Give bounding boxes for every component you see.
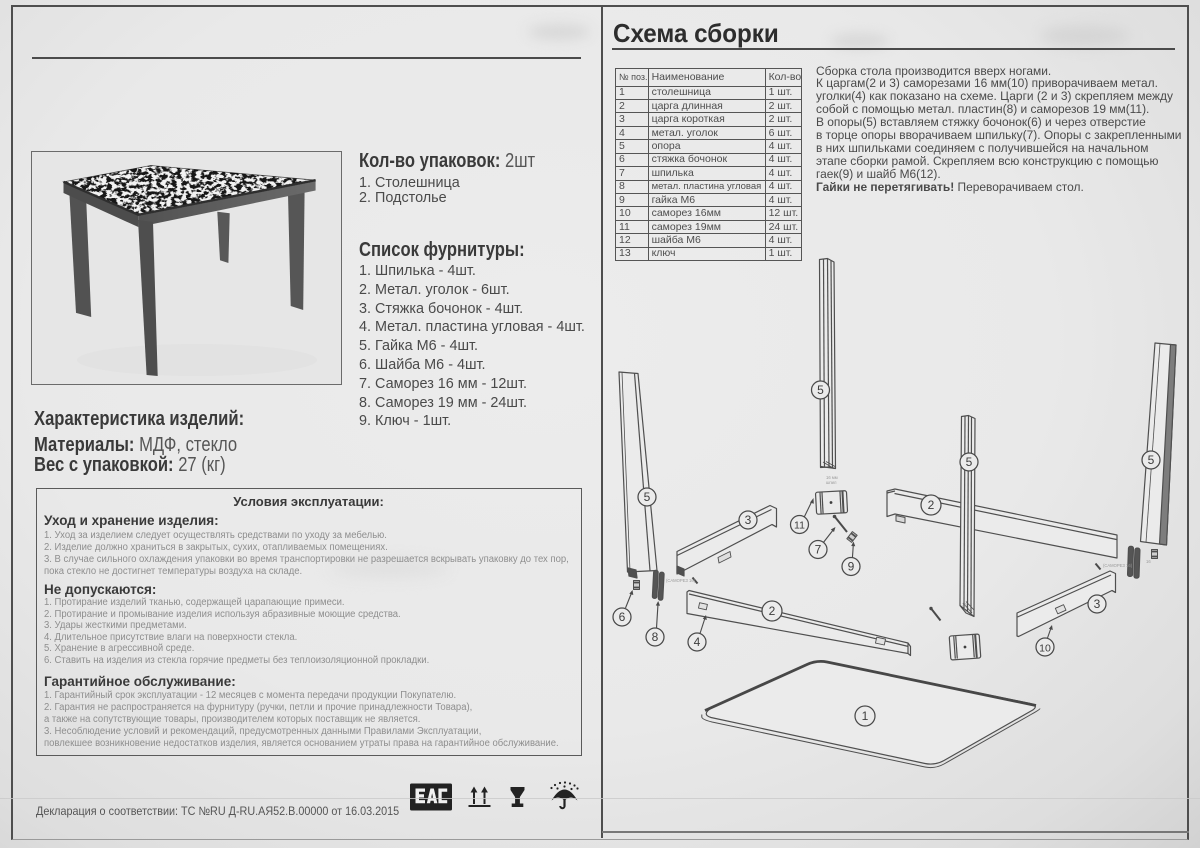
svg-text:1: 1 (862, 709, 869, 723)
svg-text:10: 10 (1039, 642, 1051, 654)
svg-text:4: 4 (694, 635, 701, 649)
svg-text:3: 3 (1094, 597, 1101, 611)
svg-text:8: 8 (652, 630, 659, 644)
svg-text:3: 3 (745, 513, 752, 527)
svg-text:5: 5 (644, 490, 651, 504)
svg-text:7: 7 (815, 543, 822, 557)
svg-text:5: 5 (817, 383, 824, 397)
svg-text:6: 6 (619, 610, 626, 624)
svg-text:16: 16 (962, 602, 967, 607)
svg-text:16: 16 (1146, 559, 1151, 564)
svg-text:(САМОРЕЗ 16): (САМОРЕЗ 16) (666, 578, 696, 583)
svg-text:2: 2 (769, 604, 776, 618)
svg-text:(САМОРЕЗ 16): (САМОРЕЗ 16) (1103, 563, 1133, 568)
svg-text:11: 11 (794, 519, 805, 531)
svg-text:5: 5 (1148, 453, 1155, 467)
svg-text:9: 9 (848, 560, 855, 574)
svg-text:2: 2 (928, 498, 935, 512)
svg-text:5: 5 (966, 455, 973, 469)
svg-text:шпил: шпил (826, 480, 837, 485)
